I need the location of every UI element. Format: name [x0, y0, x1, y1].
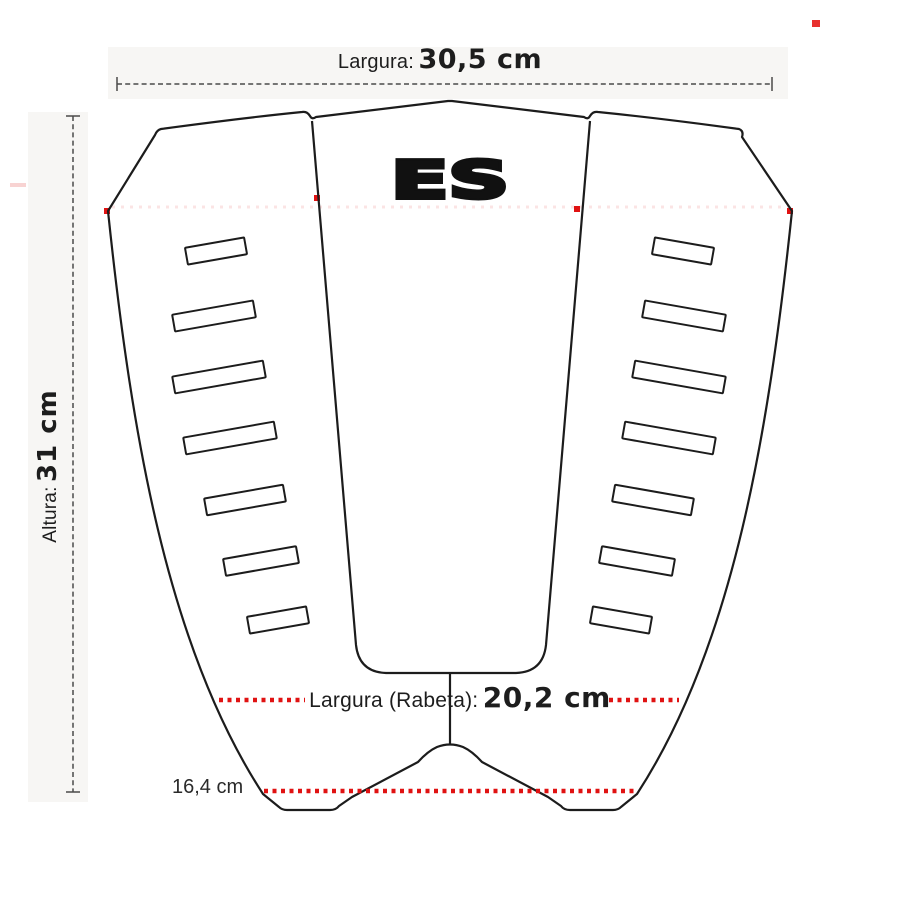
- slot: [204, 485, 286, 516]
- height-value-text: 31 cm: [33, 389, 63, 482]
- width-value-text: 30,5 cm: [418, 44, 542, 75]
- width-dimension-label: Largura: 30,5 cm: [280, 44, 600, 75]
- slot: [223, 546, 299, 576]
- traction-slots-left: [172, 237, 309, 633]
- es-logo: ES: [391, 151, 509, 211]
- slot: [599, 546, 675, 576]
- slot: [172, 361, 266, 394]
- slot: [642, 301, 726, 332]
- slot: [185, 237, 247, 264]
- traction-pad-diagram: ES Largura: 30,5 cm Altura: 31 cm Largur…: [0, 0, 900, 900]
- height-dimension-label: Altura: 31 cm: [33, 306, 63, 626]
- slot: [183, 422, 277, 455]
- slot: [590, 606, 652, 633]
- pad-outline-drawing: ES: [0, 0, 900, 900]
- slot: [172, 301, 256, 332]
- tail-width-dimension-label: Largura (Rabeta): 20,2 cm: [300, 681, 620, 714]
- slot: [652, 237, 714, 264]
- tail-width-value-text: 20,2 cm: [483, 681, 611, 714]
- kick-width-value-text: 16,4 cm: [172, 776, 243, 798]
- traction-slots-right: [590, 237, 726, 633]
- slot: [612, 485, 694, 516]
- kick-width-dimension-label: 16,4 cm: [172, 776, 243, 799]
- slot: [622, 422, 716, 455]
- width-label-text: Largura:: [338, 51, 414, 73]
- left-dimension-line: [66, 116, 80, 792]
- slot: [632, 361, 726, 394]
- slot: [247, 606, 309, 633]
- height-label-text: Altura:: [40, 486, 61, 542]
- top-dimension-line: [117, 77, 772, 91]
- tail-width-label-text: Largura (Rabeta):: [309, 689, 478, 712]
